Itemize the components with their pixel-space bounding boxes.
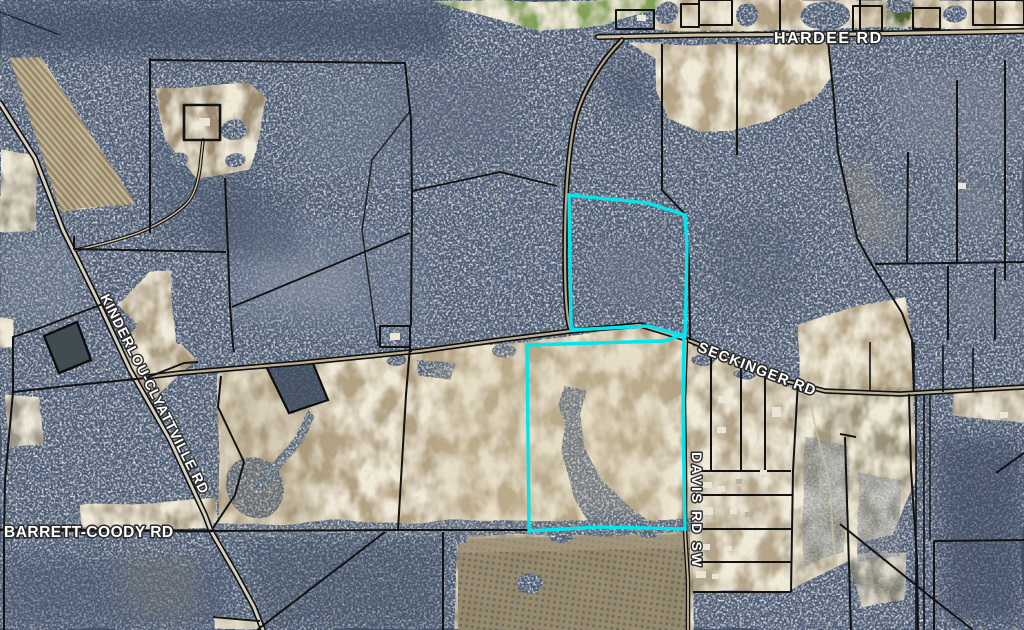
svg-text:DAVIS RD SW: DAVIS RD SW [689, 452, 705, 569]
svg-text:HARDEE RD: HARDEE RD [774, 30, 883, 47]
svg-text:BARRETT-COODY RD: BARRETT-COODY RD [4, 524, 174, 541]
